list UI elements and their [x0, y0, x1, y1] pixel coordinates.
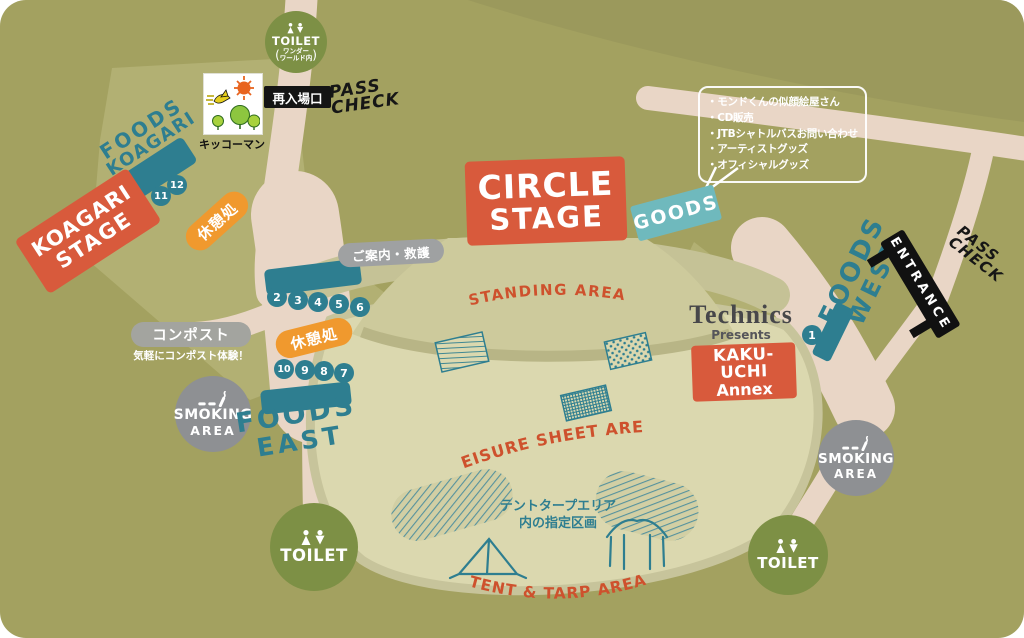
- smoking-label-line1: SMOKING: [818, 451, 894, 467]
- stall-number-12: 12: [167, 175, 187, 195]
- cigarette-icon: [193, 391, 233, 407]
- stall-number-5: 5: [329, 294, 349, 314]
- bubble-item-1: ・モンドくんの似顔絵屋さん: [707, 95, 858, 111]
- toilet-area-top: TOILET ( ワンダー ワールド内 ): [265, 11, 327, 73]
- kakuuchi-line1: KAKU-UCHI: [691, 344, 796, 383]
- tent-note-line2: 内の指定区画: [519, 515, 597, 531]
- compost-badge: コンポスト: [131, 322, 251, 347]
- technics-presents: Presents: [671, 328, 811, 342]
- stall-number-9: 9: [295, 360, 315, 380]
- kakuuchi-annex-banner: KAKU-UCHI Annex: [691, 342, 797, 402]
- stall-number-8: 8: [314, 361, 334, 381]
- bubble-item-4: ・アーティストグッズ: [707, 142, 858, 158]
- bubble-item-5: ・オフィシャルグッズ: [707, 158, 858, 174]
- circle-stage-line2: STAGE: [489, 201, 605, 236]
- stall-number-4: 4: [308, 292, 328, 312]
- cigarette-icon: [837, 436, 875, 451]
- technics-logo: Technics: [671, 300, 811, 330]
- bubble-item-2: ・CD販売: [707, 111, 858, 127]
- restroom-figures-icon: [285, 23, 307, 34]
- gate-leg-left: [867, 249, 890, 268]
- stall-number-3: 3: [288, 290, 308, 310]
- festival-venue-map: STANDING AREA LEISURE SHEET AREA TENT & …: [0, 0, 1024, 638]
- sun-bird-trees-icon: [204, 74, 260, 132]
- stall-number-2: 2: [267, 287, 287, 307]
- circle-stage-banner: CIRCLE STAGE: [465, 156, 628, 246]
- toilet-note-line2: ワールド内: [280, 55, 313, 62]
- bubble-item-3: ・JTBシャトルバスお問い合わせ: [707, 127, 858, 143]
- restroom-figures-icon: [774, 539, 802, 554]
- toilet-area-bottom-left: TOILET: [270, 503, 358, 591]
- reentry-gate-badge: 再入場口: [264, 86, 331, 108]
- smoking-area-right: SMOKING AREA: [818, 420, 894, 496]
- toilet-label: TOILET: [757, 554, 819, 572]
- smoking-label-line2: AREA: [834, 467, 878, 481]
- restroom-figures-icon: [299, 530, 329, 546]
- kikkoman-label: キッコーマン: [196, 136, 268, 152]
- goods-info-bubble: ・モンドくんの似顔絵屋さん ・CD販売 ・JTBシャトルバスお問い合わせ ・アー…: [698, 86, 867, 183]
- tent-note-line1: テントタープエリア: [500, 499, 616, 514]
- smoking-label-line2: AREA: [190, 423, 236, 438]
- paren-close: ): [312, 49, 317, 61]
- stall-number-6: 6: [350, 297, 370, 317]
- kakuuchi-line2: Annex: [716, 380, 773, 399]
- kikkoman-logo: [203, 73, 263, 135]
- stall-number-10: 10: [274, 359, 294, 379]
- toilet-label: TOILET: [280, 546, 347, 565]
- stall-number-7: 7: [334, 363, 354, 383]
- compost-subtitle: 気軽にコンポスト体験！: [111, 348, 271, 363]
- toilet-area-bottom-right: TOILET: [748, 515, 828, 595]
- gate-leg-right: [909, 319, 932, 338]
- stall-number-1: 1: [802, 325, 822, 345]
- toilet-label: TOILET: [272, 34, 320, 48]
